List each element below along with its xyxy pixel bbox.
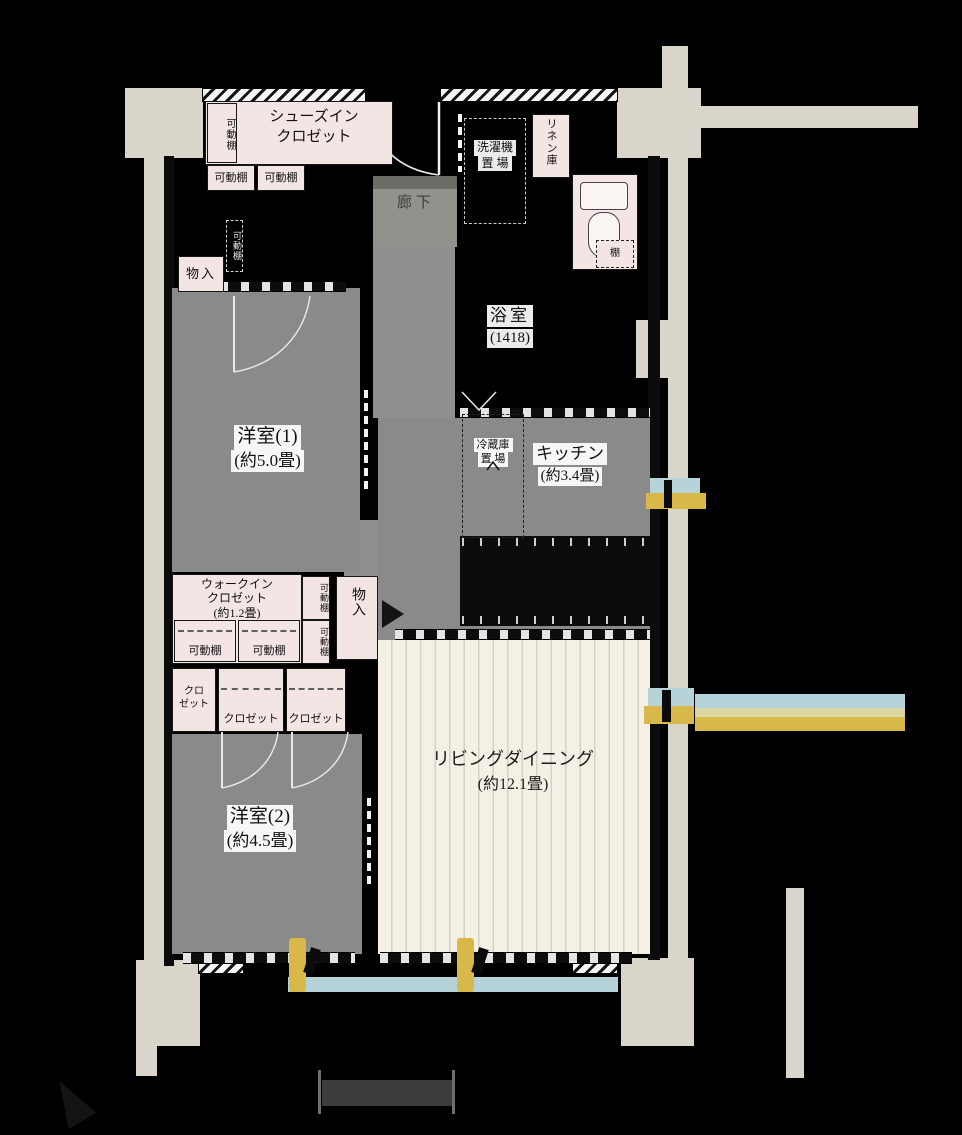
pillar-top-right-stub	[662, 46, 688, 88]
bedroom2-balcony-window	[183, 952, 355, 964]
outer-wall-right-bump	[636, 320, 688, 378]
shoes-in-closet-label-line1: シューズイン	[238, 108, 390, 128]
linen-cabinet: リネン庫	[532, 114, 570, 178]
living-top-window	[395, 629, 650, 640]
kitchen-counter-ticks-top	[462, 538, 648, 546]
living-pipe-sleeve-blue	[648, 688, 694, 706]
service-band-pale	[695, 708, 905, 717]
closet-2: クロゼット	[218, 668, 284, 732]
closet-small-line2: ゼット	[173, 698, 215, 711]
laundry-label-line2: 置 場	[478, 156, 511, 172]
closet-small-line1: クロ	[173, 685, 215, 698]
closet-small: クロ ゼット	[172, 668, 216, 732]
balcony-sash-band	[288, 977, 618, 992]
storage-1: 物入	[178, 256, 224, 292]
wic-label-line1: ウォークイン	[174, 577, 300, 591]
kitchen-pipe-blue	[650, 478, 700, 493]
closet-3: クロゼット	[286, 668, 346, 732]
balcony-drain-post-2	[457, 938, 474, 992]
pillar-top-right	[617, 88, 701, 158]
pillar-bottom-left	[136, 960, 200, 1046]
shoes-in-closet-label-line2: クロゼット	[238, 128, 390, 148]
walk-in-closet-label: ウォークイン クロゼット (約1.2畳)	[174, 577, 300, 620]
common-corridor-arm	[701, 106, 918, 128]
kitchen-counter-ticks-bottom	[462, 616, 648, 624]
bathroom-size: (1418)	[487, 329, 533, 349]
entrance-step	[373, 176, 457, 189]
balcony-divider-right	[786, 888, 804, 1078]
hallway-floor	[373, 247, 455, 418]
living-pipe-valve	[662, 690, 671, 722]
wic-label-line2: クロゼット	[174, 591, 300, 605]
service-band-yellow	[695, 717, 905, 731]
wic-hanger-pipe-2	[242, 630, 296, 632]
shoes-in-closet-shelf-2: 可動棚	[257, 165, 305, 191]
outer-wall-right	[668, 156, 688, 960]
closet-2-hanger-pipe	[221, 688, 281, 690]
kitchen-label: キッチン (約3.4畳)	[495, 443, 645, 487]
bedroom2-name: 洋室(2)	[227, 805, 293, 830]
wic-vertical-shelf-2: 可動棚	[302, 620, 330, 664]
bedroom2-size: (約4.5畳)	[224, 830, 297, 852]
kitchen-name: キッチン	[533, 443, 607, 465]
service-band-blue	[695, 694, 905, 708]
living-name: リビングダイニング	[388, 748, 638, 771]
bedroom1-name: 洋室(1)	[234, 425, 300, 450]
kitchen-pipe-valve	[664, 480, 672, 508]
storage-2: 物入	[336, 576, 378, 660]
bathroom-name: 浴室	[487, 305, 533, 327]
bedroom1-label: 洋室(1) (約5.0畳)	[180, 425, 355, 472]
living-balcony-window	[380, 952, 632, 964]
living-label: リビングダイニング (約12.1畳)	[388, 748, 638, 796]
living-dining-floor	[378, 640, 650, 954]
laundry-label-line1: 洗濯機	[474, 140, 516, 156]
pillar-top-left	[125, 88, 203, 158]
hatched-wall-top-left	[202, 88, 366, 102]
outer-wall-left	[144, 156, 164, 964]
storage-2-label: 物入	[347, 587, 367, 651]
shoes-in-closet-label: シューズイン クロゼット	[238, 108, 390, 147]
toilet-shelf: 棚	[596, 240, 634, 268]
compass-icon	[46, 1073, 97, 1129]
laundry-space-label: 洗濯機 置 場	[462, 140, 528, 171]
scale-bar	[322, 1080, 452, 1106]
bedroom2-label: 洋室(2) (約4.5畳)	[180, 805, 340, 852]
pillar-bottom-right	[621, 958, 694, 1046]
linen-cabinet-label: リネン庫	[543, 118, 559, 170]
hatched-wall-top-right	[440, 88, 618, 102]
living-size: (約12.1畳)	[388, 775, 638, 796]
kitchen-counter	[460, 536, 650, 626]
toilet-tank	[580, 182, 628, 210]
hallway-label: 廊下	[381, 194, 451, 214]
shoes-in-closet-shelf-1: 可動棚	[207, 165, 255, 191]
bathroom-label: 浴室 (1418)	[452, 305, 568, 349]
scale-bar-tick-left	[318, 1070, 321, 1114]
wic-vertical-shelf-1: 可動棚	[302, 576, 330, 620]
outer-wall-left-foot	[136, 1046, 157, 1076]
bedroom1-size: (約5.0畳)	[231, 450, 304, 472]
kitchen-size: (約3.4畳)	[538, 467, 603, 487]
kitchen-pipe-yellow	[646, 493, 706, 509]
floor-plan: 可動棚 シューズイン クロゼット 可動棚 可動棚 可動棚 物入 廊下 洗濯機 置…	[0, 0, 962, 1135]
wic-shelf-1: 可動棚	[174, 620, 236, 662]
closet-3-hanger-pipe	[289, 688, 343, 690]
scale-bar-tick-right	[452, 1070, 455, 1114]
wic-shelf-2: 可動棚	[238, 620, 300, 662]
shoes-in-closet-shelf-left: 可動棚	[207, 103, 237, 163]
wic-size: (約1.2畳)	[174, 606, 300, 620]
wic-hanger-pipe-1	[178, 630, 232, 632]
balcony-drain-post-1	[289, 938, 306, 992]
hall-movable-shelf: 可動棚	[226, 220, 243, 272]
